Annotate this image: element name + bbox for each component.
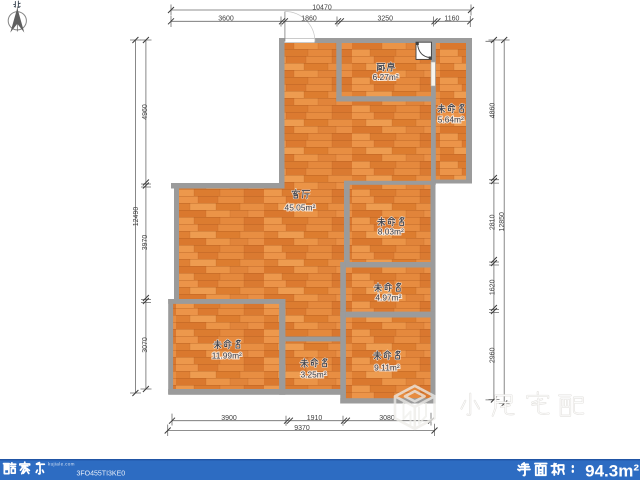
svg-text:1620: 1620: [490, 279, 497, 295]
svg-text:11.99m²: 11.99m²: [212, 351, 242, 361]
svg-text:94.3m²: 94.3m²: [585, 461, 639, 480]
svg-text:1860: 1860: [301, 16, 317, 23]
svg-text:4.97m²: 4.97m²: [375, 293, 401, 303]
svg-text:1160: 1160: [444, 16, 459, 23]
svg-text:45.05m²: 45.05m²: [285, 203, 316, 213]
svg-text:3600: 3600: [218, 16, 234, 23]
svg-text:1910: 1910: [307, 415, 323, 422]
svg-text:8.03m²: 8.03m²: [378, 226, 404, 236]
svg-text:3.25m²: 3.25m²: [300, 370, 326, 380]
svg-text:3900: 3900: [221, 415, 237, 422]
svg-text:12490: 12490: [133, 207, 140, 227]
svg-text:9370: 9370: [294, 425, 310, 432]
svg-text:3080: 3080: [379, 415, 395, 422]
svg-text:2810: 2810: [490, 214, 497, 230]
svg-text:4860: 4860: [490, 103, 497, 119]
svg-text:5.64m²: 5.64m²: [438, 114, 464, 124]
svg-text:kujiale.com: kujiale.com: [48, 462, 75, 467]
svg-text:2960: 2960: [490, 347, 497, 363]
svg-text:3970: 3970: [142, 235, 149, 251]
svg-text:6.27m²: 6.27m²: [373, 72, 399, 82]
svg-text:3070: 3070: [142, 337, 149, 353]
svg-text:3250: 3250: [378, 16, 394, 23]
svg-text:10470: 10470: [312, 5, 332, 12]
svg-text:4960: 4960: [142, 104, 149, 120]
svg-text:3FO455TI3KE0: 3FO455TI3KE0: [77, 470, 126, 477]
svg-text:12850: 12850: [499, 212, 506, 232]
svg-text:9.11m²: 9.11m²: [374, 362, 400, 372]
